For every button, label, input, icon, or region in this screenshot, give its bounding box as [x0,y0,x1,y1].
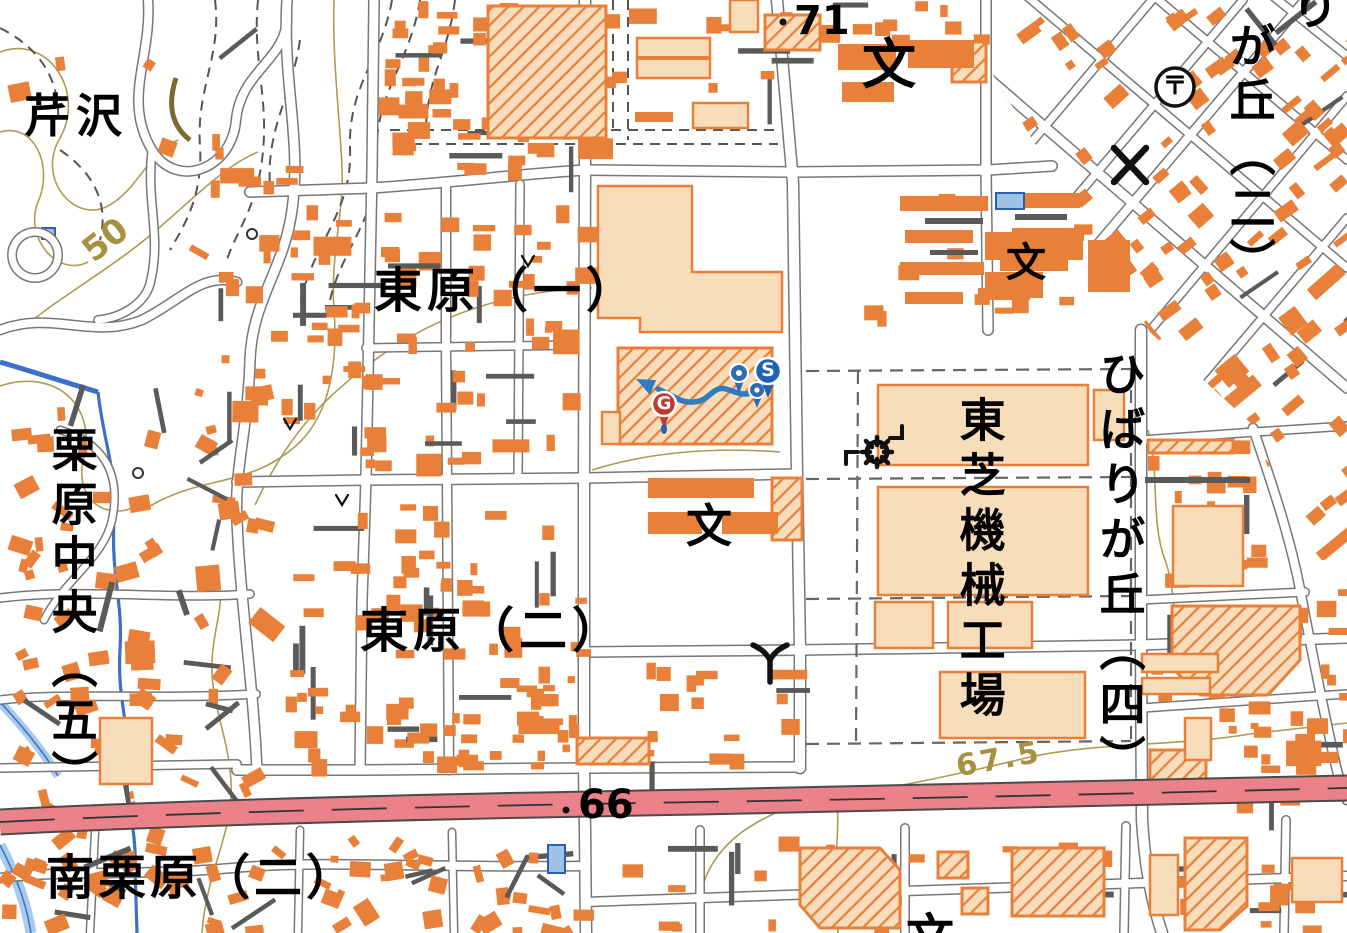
route-start-label: S [759,359,777,381]
place-label-gaoka-2: が丘（二） [1224,22,1274,292]
well-icon [133,468,143,478]
spot-elevation-66: 66 [578,784,634,827]
place-label-toshiba-factory: 東芝機械工場 [954,396,1004,726]
post-office-glyph: 〒 [1160,72,1190,99]
spot-elevation-dot [563,807,570,814]
place-label-ri-partial: り [1292,0,1338,34]
place-label-higashihara-2: 東原（二） [360,606,625,658]
spot-elevation-dot [780,19,787,26]
police-box-icon [1114,148,1146,182]
school-icon: 文 [1006,242,1046,285]
monument-icon [247,229,257,239]
place-label-minami-kurihara-2: 南栗原（二） [46,853,358,905]
place-label-higashihara-1: 東原（一） [374,266,639,318]
route-goal-label: G [655,393,673,414]
map-canvas[interactable]: 芹沢 東原（一） 東原（二） 南栗原（二） 栗原中央（五） 東芝機械工場 ひばり… [0,0,1347,933]
school-icon: 文 [686,502,732,552]
place-label-hibarigaoka-4: ひばりが丘（四） [1094,350,1144,790]
school-icon: 文 [906,912,954,933]
spot-elevation-71: 71 [794,0,850,43]
place-label-serizawa: 芹沢 [24,92,128,142]
embankment [172,78,190,140]
place-label-kurihara-chuo-5: 栗原中央（五） [46,426,96,804]
school-icon: 文 [862,36,916,94]
